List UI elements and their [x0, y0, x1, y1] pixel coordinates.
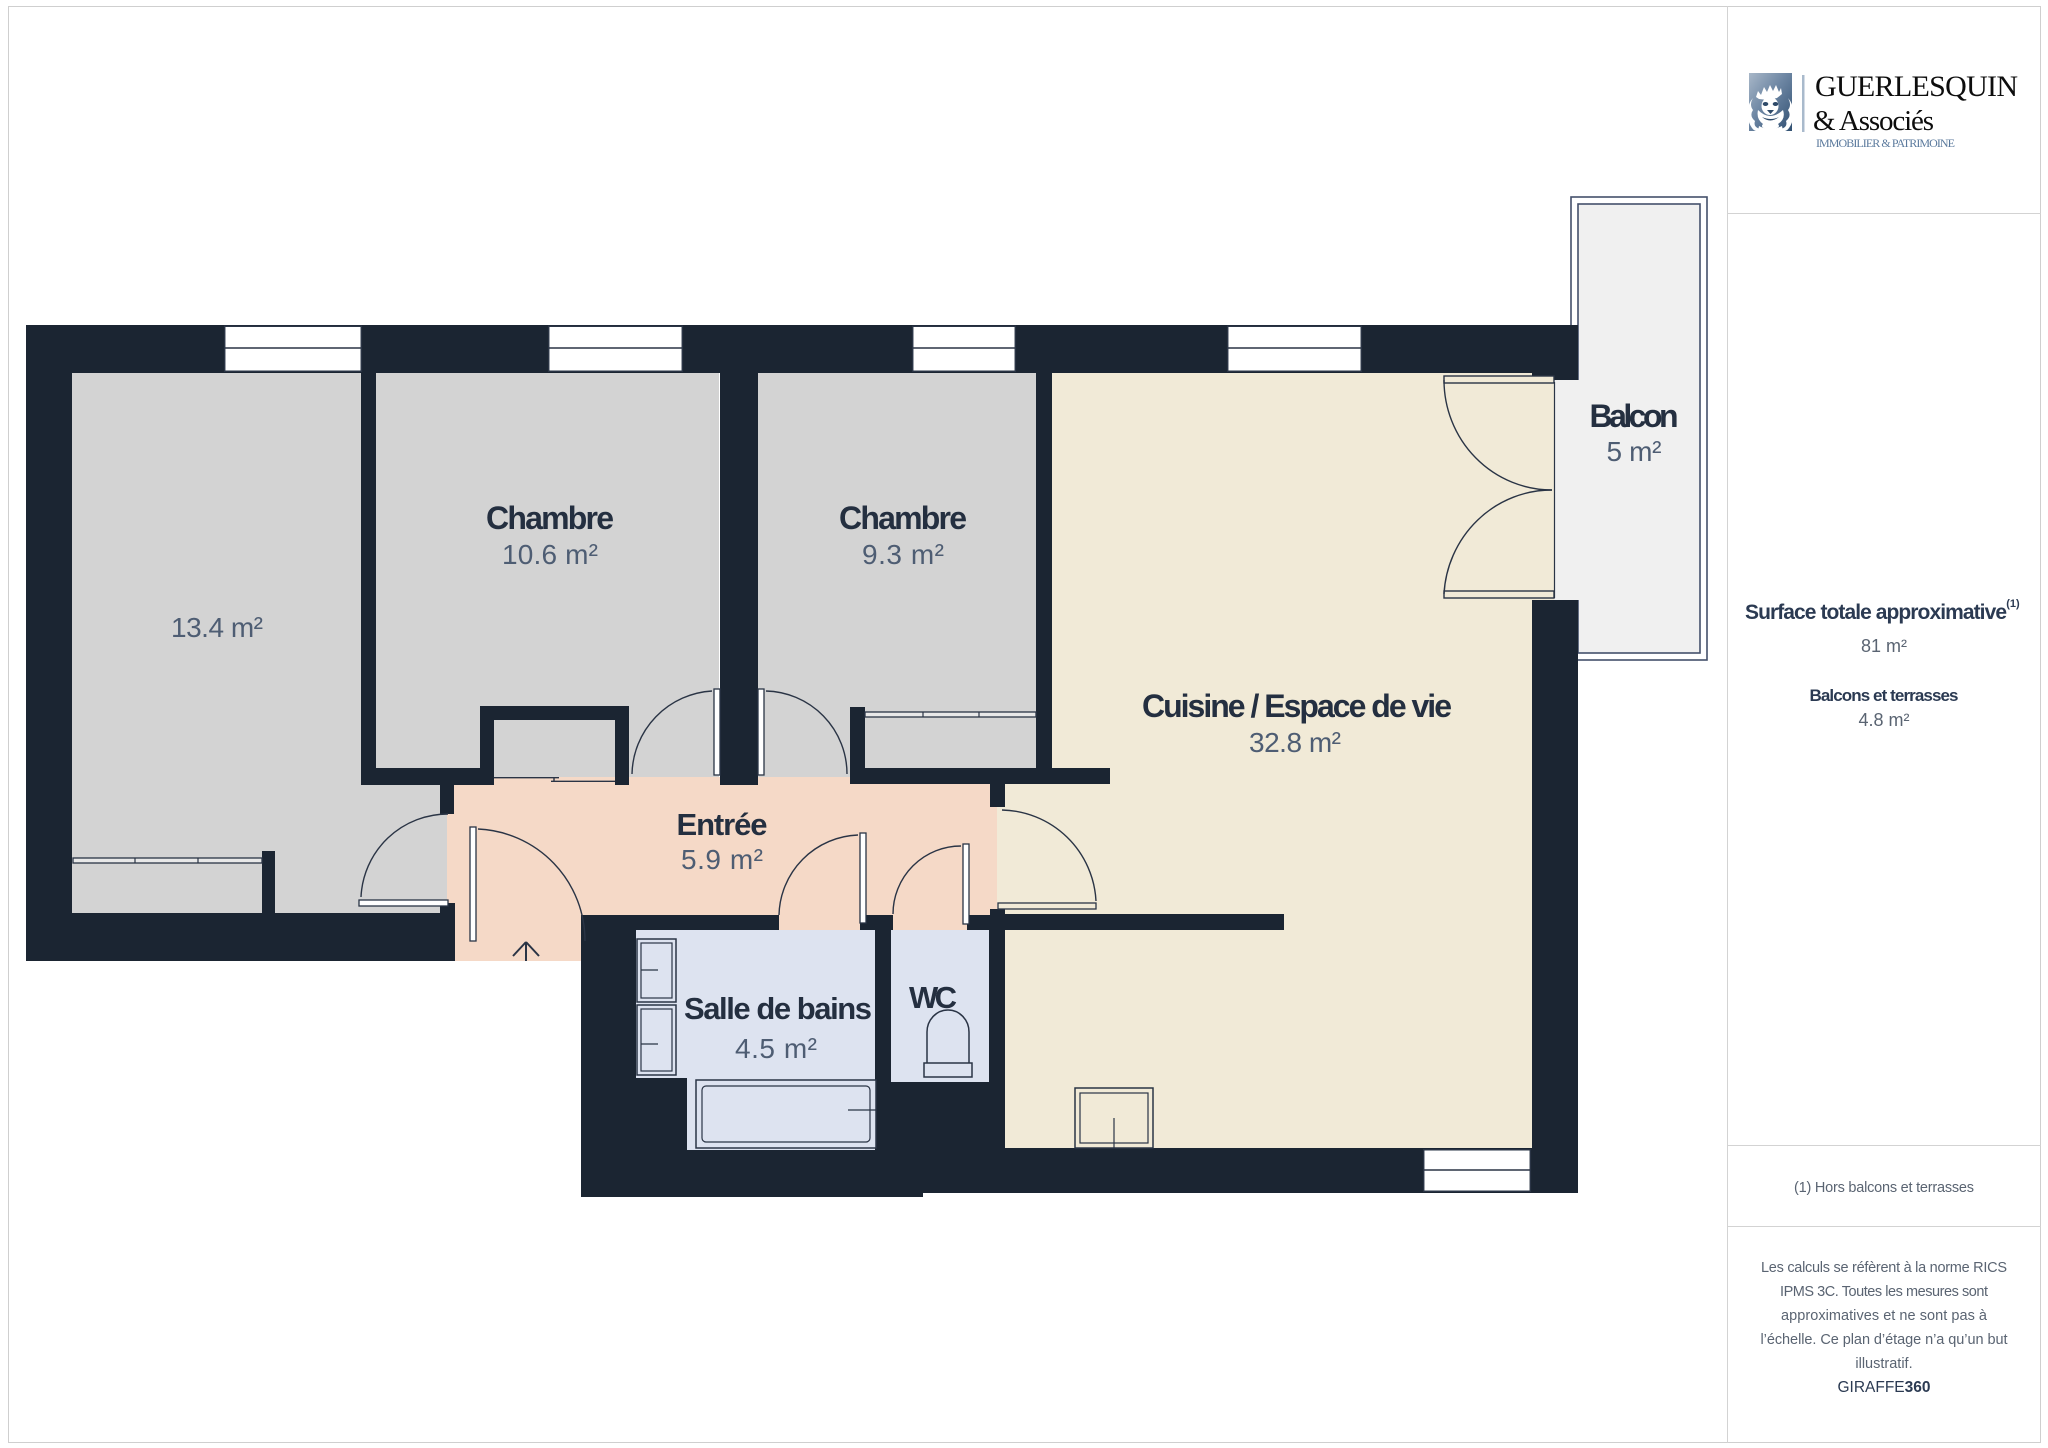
svg-text:Balcon: Balcon [1590, 398, 1679, 434]
svg-text:(1): (1) [2006, 598, 2020, 610]
svg-text:4.8 m²: 4.8 m² [1858, 710, 1909, 730]
svg-text:& Associés: & Associés [1813, 105, 1934, 137]
svg-text:5 m²: 5 m² [1607, 436, 1662, 467]
svg-text:approximatives et ne sont pas: approximatives et ne sont pas à [1781, 1308, 1988, 1324]
svg-text:illustratif.: illustratif. [1855, 1356, 1912, 1372]
svg-text:GUERLESQUIN: GUERLESQUIN [1815, 70, 2018, 103]
svg-text:Balcons et terrasses: Balcons et terrasses [1810, 686, 1959, 705]
svg-text:GIRAFFE360: GIRAFFE360 [1837, 1379, 1930, 1396]
svg-text:10.6 m²: 10.6 m² [502, 539, 598, 570]
svg-text:4.5 m²: 4.5 m² [735, 1033, 817, 1064]
svg-text:(1) Hors balcons et terrasses: (1) Hors balcons et terrasses [1794, 1180, 1974, 1196]
svg-text:32.8 m²: 32.8 m² [1249, 727, 1341, 758]
svg-text:l’échelle. Ce plan d’étage n’a: l’échelle. Ce plan d’étage n’a qu’un but [1761, 1332, 2008, 1348]
svg-text:IPMS 3C. Toutes les mesures so: IPMS 3C. Toutes les mesures sont [1780, 1284, 1988, 1300]
svg-text:13.4 m²: 13.4 m² [171, 612, 263, 643]
svg-text:Salle de bains: Salle de bains [684, 991, 872, 1026]
svg-text:Chambre: Chambre [839, 500, 967, 536]
svg-text:IMMOBILIER & PATRIMOINE: IMMOBILIER & PATRIMOINE [1816, 136, 1955, 150]
svg-text:Cuisine / Espace de vie: Cuisine / Espace de vie [1142, 688, 1452, 724]
svg-text:Les calculs se réfèrent à la n: Les calculs se réfèrent à la norme RICS [1761, 1260, 2007, 1276]
svg-text:WC: WC [909, 980, 957, 1015]
svg-text:Chambre: Chambre [486, 500, 614, 536]
svg-text:5.9 m²: 5.9 m² [681, 844, 763, 875]
svg-text:Entrée: Entrée [677, 807, 768, 842]
svg-text:Surface totale approximative: Surface totale approximative [1745, 601, 2007, 624]
svg-text:81 m²: 81 m² [1861, 636, 1907, 656]
svg-text:9.3 m²: 9.3 m² [862, 539, 944, 570]
